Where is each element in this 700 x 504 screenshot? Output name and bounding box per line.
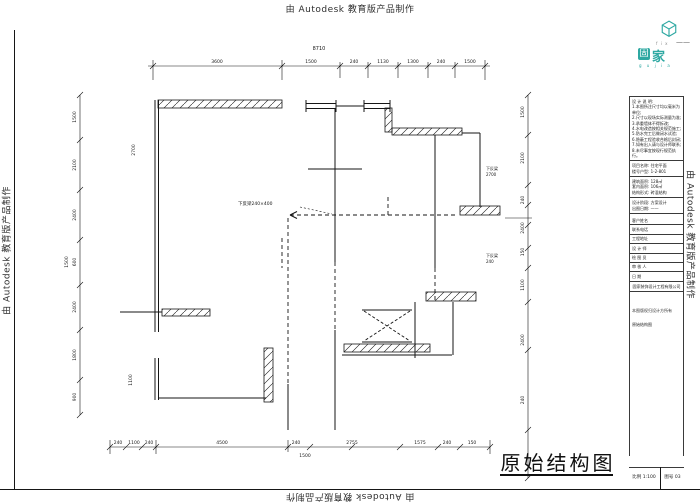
annotation-leader bbox=[300, 207, 332, 214]
title-block-divider bbox=[630, 197, 683, 198]
notes-line: 5.防水完工后做闭水试验; bbox=[632, 131, 682, 136]
dimension-labels: 8710 3600 1500 240 1130 1300 240 1500 15… bbox=[64, 46, 526, 459]
dim-label: 600 bbox=[72, 258, 78, 267]
dim-label: 1500 bbox=[305, 59, 317, 65]
beam-annotation: 下反梁 bbox=[486, 165, 498, 171]
field-value bbox=[679, 274, 683, 279]
title-block-sheet-name: 原始结构图 bbox=[632, 322, 682, 327]
stamp-divider bbox=[660, 467, 661, 489]
field-value bbox=[679, 255, 683, 260]
dim-label: 240 bbox=[145, 440, 154, 446]
dim-label: 2755 bbox=[346, 440, 358, 446]
title-block-notes: 设 计 说 明: 1.本图所注尺寸均以毫米为单位; 2.尺寸以现场实际测量为准;… bbox=[632, 99, 682, 158]
dim-chain-left bbox=[77, 92, 83, 418]
dim-label: 2100 bbox=[520, 152, 526, 164]
field-label: 审 核 人 bbox=[630, 264, 649, 269]
dim-label: 240 bbox=[114, 440, 123, 446]
wall-under-shaft bbox=[344, 344, 430, 352]
dim-label: 2400 bbox=[520, 222, 526, 234]
field-row: 联系电话 bbox=[630, 225, 683, 234]
wall-corner bbox=[385, 108, 392, 132]
title-block: 设 计 说 明: 1.本图所注尺寸均以毫米为单位; 2.尺寸以现场实际测量为准;… bbox=[629, 96, 684, 456]
plan-annotations: 下反梁240×400 下反梁 2700 下反梁 240 bbox=[238, 165, 498, 264]
solid-walls bbox=[120, 100, 480, 430]
title-block-project: 项目名称: 住宅平面 楼号户型: 1-2-801 bbox=[632, 163, 682, 174]
field-value bbox=[679, 236, 683, 241]
dim-label: 1800 bbox=[72, 349, 78, 361]
field-row: 审 核 人 bbox=[630, 263, 683, 272]
title-block-fields: 客户姓名 联系电话 工程地址 设 计 师 绘 图 员 审 核 人 bbox=[632, 216, 682, 282]
dim-label: 240 bbox=[350, 59, 359, 65]
dim-label: 240 bbox=[520, 396, 526, 405]
field-label: 工程地址 bbox=[630, 236, 650, 241]
cad-sheet: 由 Autodesk 教育版产品制作 由 Autodesk 教育版产品制作 由 … bbox=[0, 0, 700, 504]
dim-label: 1100 bbox=[128, 440, 140, 446]
info-line: 出图日期: —— bbox=[632, 206, 682, 211]
dim-label-total: 8710 bbox=[313, 46, 326, 52]
beam-annotation: 2700 bbox=[486, 172, 497, 177]
wall-lower-left bbox=[264, 348, 273, 402]
company-name: 固家装饰设计工程有限公司 bbox=[630, 282, 683, 292]
wall-top-left bbox=[158, 100, 282, 108]
field-label: 绘 图 员 bbox=[630, 255, 649, 260]
field-row: 客户姓名 bbox=[630, 216, 683, 225]
title-block-divider bbox=[630, 160, 683, 161]
wall-mid-left bbox=[162, 309, 210, 316]
dim-label: 1100 bbox=[520, 279, 526, 291]
title-block-areas: 建筑面积: 128㎡ 套内面积: 106㎡ 结构形式: 砖混结构 bbox=[632, 179, 682, 195]
dim-label: 3600 bbox=[211, 59, 223, 65]
field-row: 工程地址 bbox=[630, 235, 683, 244]
field-row: 设 计 师 bbox=[630, 244, 683, 253]
field-row: 绘 图 员 bbox=[630, 254, 683, 263]
wall-beam-end bbox=[460, 206, 500, 215]
dim-label: 900 bbox=[72, 393, 78, 402]
field-value bbox=[679, 264, 683, 269]
dim-label: 2400 bbox=[72, 301, 78, 313]
beam-annotation: 下反梁240×400 bbox=[238, 200, 273, 207]
info-line: 结构形式: 砖混结构 bbox=[632, 190, 682, 195]
dim-label: 240 bbox=[292, 440, 301, 446]
dim-label: 240 bbox=[443, 440, 452, 446]
title-block-divider bbox=[630, 176, 683, 177]
dim-label: 2400 bbox=[520, 334, 526, 346]
dim-label: 2700 bbox=[131, 144, 137, 156]
field-value bbox=[679, 227, 683, 232]
dimension-chains bbox=[77, 60, 532, 481]
field-label: 日 期 bbox=[630, 274, 643, 279]
notes-line: 8.未尽事宜按现行规范执行。 bbox=[632, 148, 682, 159]
drawing-title: 原始结构图 bbox=[500, 447, 616, 476]
dim-label: 240 bbox=[437, 59, 446, 65]
notes-line: 7.如有出入请与设计师联系; bbox=[632, 142, 682, 147]
dim-label: 1130 bbox=[377, 59, 389, 65]
hatched-walls bbox=[158, 100, 500, 402]
dim-label: 1500 bbox=[299, 453, 311, 459]
dim-label: 2100 bbox=[72, 159, 78, 171]
beam-lines bbox=[282, 197, 458, 384]
stamp-row-topline bbox=[629, 467, 684, 468]
field-value bbox=[679, 218, 683, 223]
wall-lines bbox=[120, 100, 480, 430]
notes-line: 1.本图所注尺寸均以毫米为单位; bbox=[632, 104, 682, 115]
dim-label: 150 bbox=[468, 440, 477, 446]
field-value bbox=[679, 246, 683, 251]
title-block-footnote: 本图版权归设计方所有 bbox=[632, 308, 682, 313]
field-label: 联系电话 bbox=[630, 227, 650, 232]
dim-label: 1500 bbox=[520, 106, 526, 118]
field-label: 设 计 师 bbox=[630, 246, 649, 251]
floor-plan-drawing: 8710 3600 1500 240 1130 1300 240 1500 15… bbox=[0, 0, 700, 504]
dim-label: 1500 bbox=[464, 59, 476, 65]
dim-label: 1575 bbox=[414, 440, 426, 446]
dim-chain-right bbox=[505, 92, 532, 481]
dim-label: 2400 bbox=[72, 209, 78, 221]
wall-lower-right bbox=[426, 292, 476, 301]
wall-top-right bbox=[392, 128, 462, 135]
shaft-x-cross bbox=[364, 311, 410, 341]
title-block-phase: 设计阶段: 方案设计 出图日期: —— bbox=[632, 200, 682, 211]
dim-label: 1100 bbox=[128, 374, 134, 386]
dashed-beams bbox=[282, 197, 458, 384]
field-label: 客户姓名 bbox=[630, 218, 650, 223]
sheet-number-stamp: 图号 03 bbox=[662, 474, 683, 480]
beam-annotation: 240 bbox=[486, 259, 494, 264]
field-row: 日 期 bbox=[630, 272, 683, 281]
notes-line: 2.尺寸以现场实际测量为准; bbox=[632, 115, 682, 120]
info-line: 楼号户型: 1-2-801 bbox=[632, 169, 682, 174]
dim-label: 150 bbox=[520, 248, 526, 257]
beam-annotation: 下反梁 bbox=[486, 252, 498, 258]
dim-label: 240 bbox=[520, 196, 526, 205]
drawing-title-underline bbox=[500, 474, 613, 476]
dim-label: 1500 bbox=[72, 111, 78, 123]
dim-label: 4500 bbox=[216, 440, 228, 446]
scale-stamp: 比例 1:100 bbox=[629, 474, 659, 480]
dim-label: 1300 bbox=[407, 59, 419, 65]
dim-label: 1500 bbox=[64, 256, 70, 268]
title-block-divider bbox=[630, 213, 683, 214]
